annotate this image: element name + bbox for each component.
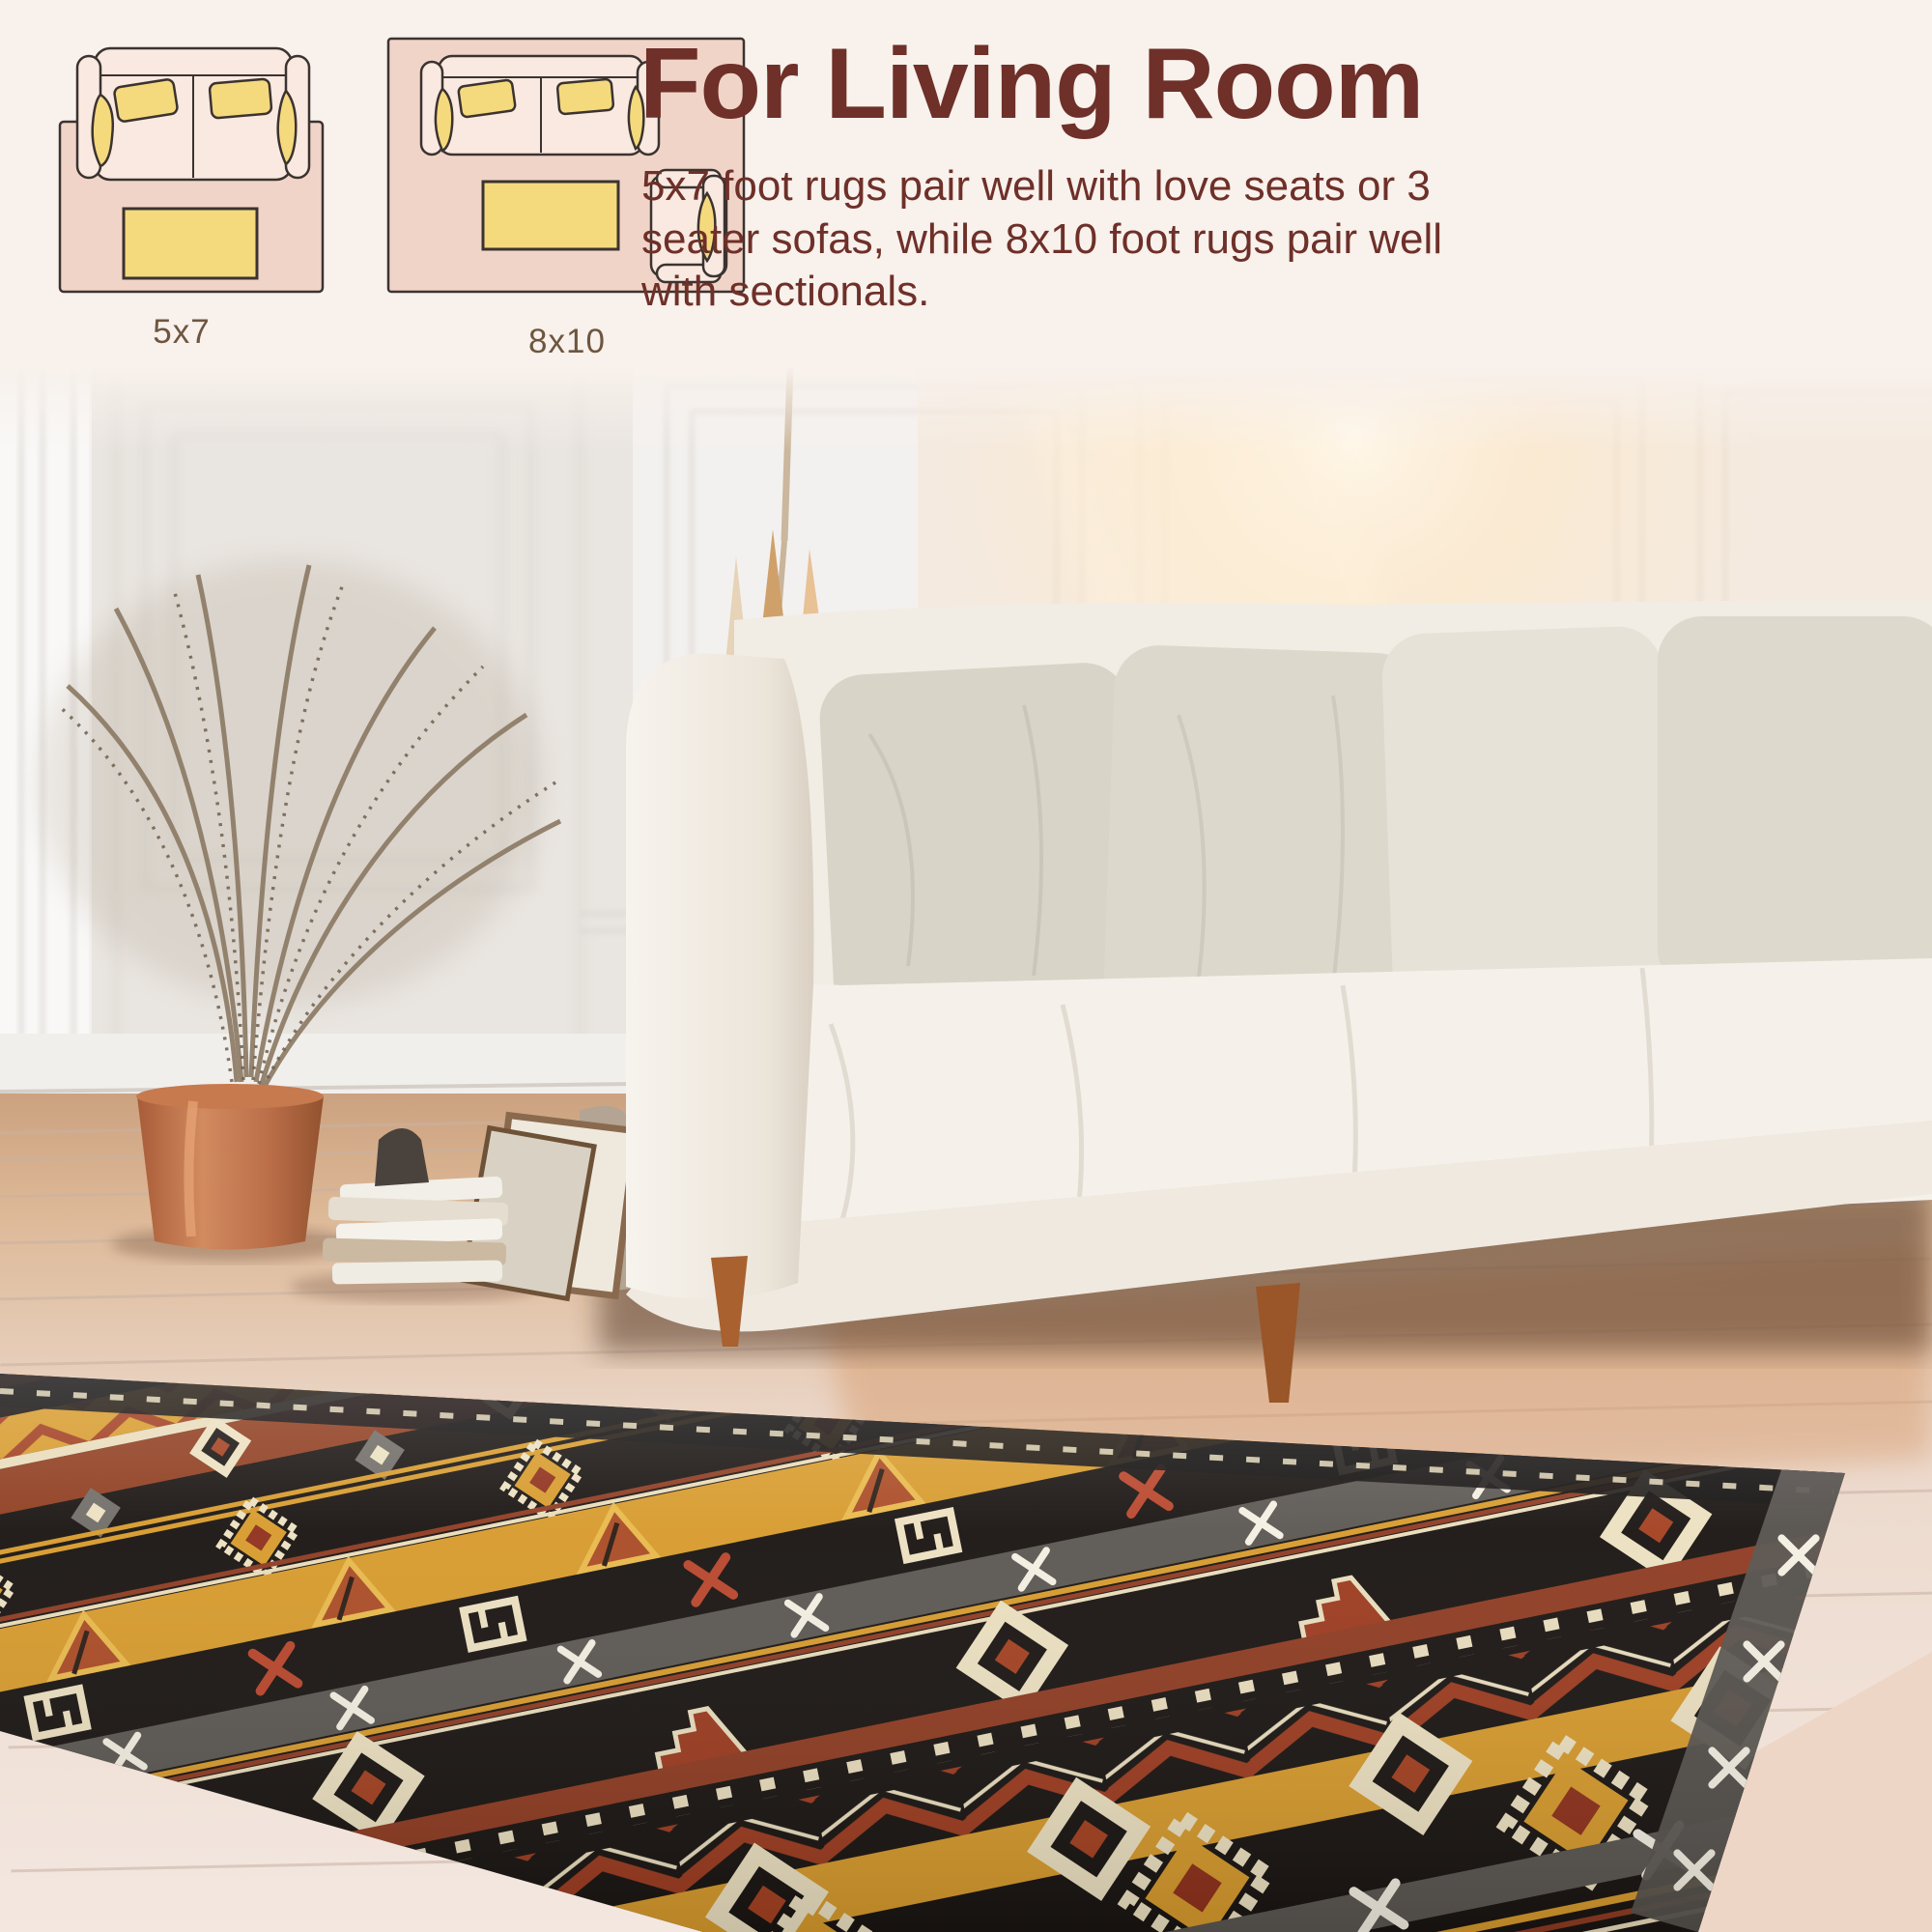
header-photo-fade <box>0 365 1932 452</box>
loveseat-top-view-icon <box>77 48 309 180</box>
terracotta-pot <box>137 1096 324 1250</box>
page-title: For Living Room <box>639 27 1924 142</box>
sofa-pillow <box>1380 625 1673 1011</box>
coffee-table-icon <box>483 182 618 249</box>
header: 5x7 8x10 <box>0 0 1932 367</box>
diagram-label-8x10: 8x10 <box>379 323 755 361</box>
page-description: 5x7 foot rugs pair well with love seats … <box>641 160 1516 319</box>
rug-size-diagram-5x7-icon <box>37 27 327 307</box>
coffee-table-icon <box>124 209 257 278</box>
product-image: 5x7 8x10 <box>0 0 1932 1932</box>
diagram-label-5x7: 5x7 <box>37 313 327 352</box>
sofa-arm <box>626 653 813 1299</box>
sofa-top-view-icon <box>421 56 659 155</box>
living-room-photo <box>0 367 1932 1932</box>
sofa-pillow <box>1658 616 1932 993</box>
